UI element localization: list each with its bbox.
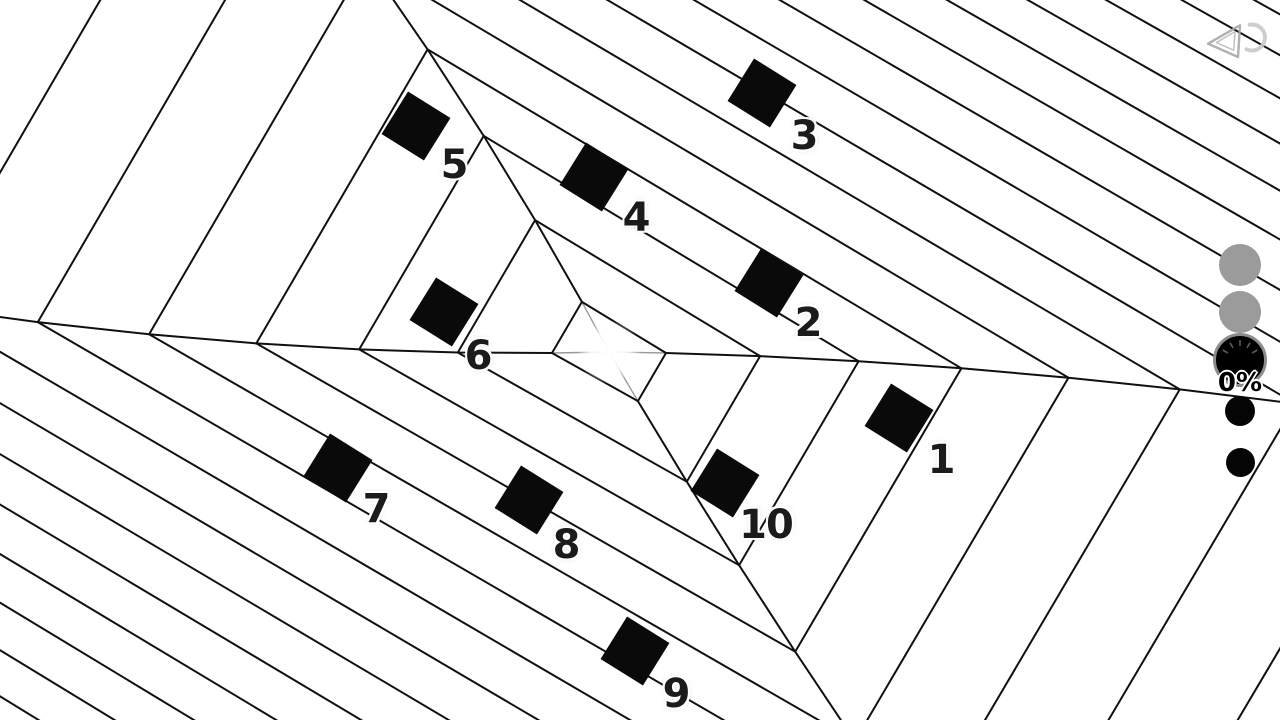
target-number-label: 1 [928,440,955,480]
target-number-label: 9 [663,674,690,714]
game-viewport: 12345678910 0% [0,0,1280,720]
target-number-label: 4 [623,198,650,238]
target-number-label: 10 [739,505,793,545]
vortex-center-glow [577,320,641,384]
indicator-dot-4 [1225,396,1255,426]
indicator-dot-2 [1219,291,1261,333]
replay-arc-icon [1247,25,1265,51]
target-number-label: 7 [363,489,390,529]
vortex-background [0,0,1280,720]
target-number-label: 3 [791,116,818,156]
target-number-label: 5 [441,145,468,185]
target-number-label: 2 [795,303,822,343]
rewind-triangle-icon [1208,25,1240,57]
target-number-label: 6 [465,336,492,376]
target-number-label: 8 [553,525,580,565]
progress-percent-label: 0% [1218,370,1262,396]
replay-icon[interactable] [1200,16,1276,64]
indicator-dot-5 [1226,448,1255,477]
indicator-dot-1 [1219,244,1261,286]
vortex-rings [0,0,1280,720]
